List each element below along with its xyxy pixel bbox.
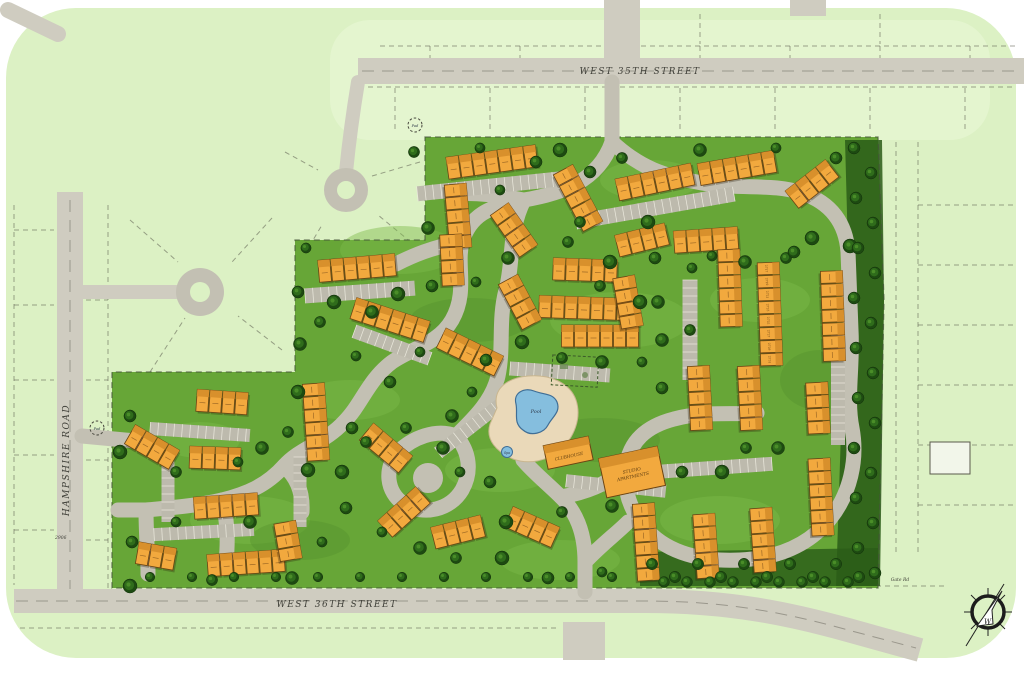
tree	[317, 537, 327, 547]
tree	[869, 417, 881, 429]
tree	[751, 577, 762, 588]
tree	[365, 305, 378, 318]
tree	[830, 152, 842, 164]
tree	[291, 385, 305, 399]
tree	[562, 236, 573, 247]
tree	[715, 571, 726, 582]
building-unit	[819, 284, 843, 299]
tree	[553, 143, 567, 157]
tree	[400, 422, 411, 433]
tree	[705, 577, 716, 588]
building-unit	[738, 417, 763, 432]
tree	[113, 445, 127, 459]
tree	[738, 558, 749, 569]
tree	[426, 280, 438, 292]
tree	[415, 347, 425, 357]
unit-number: 2727	[767, 330, 771, 338]
tree	[707, 251, 717, 261]
tree	[481, 572, 491, 582]
tree	[243, 515, 256, 528]
tree	[865, 317, 877, 329]
tree	[850, 192, 862, 204]
tree	[649, 252, 661, 264]
tree	[651, 295, 664, 308]
building-unit	[601, 325, 615, 349]
tree	[687, 263, 697, 273]
tree	[659, 577, 670, 588]
tree	[351, 351, 361, 361]
tree	[301, 243, 311, 253]
tree	[761, 571, 772, 582]
tree	[484, 476, 496, 488]
building-unit	[588, 325, 602, 349]
tree	[455, 467, 465, 477]
tree	[728, 577, 739, 588]
tree	[384, 376, 396, 388]
building-unit	[688, 417, 713, 432]
unit-number: 2717	[764, 265, 768, 273]
building-unit	[189, 446, 204, 470]
street-stub-bottom	[563, 622, 605, 660]
building-unit	[382, 254, 398, 279]
tree	[335, 465, 349, 479]
tree	[852, 392, 864, 404]
tree	[848, 142, 860, 154]
building-unit	[818, 271, 842, 286]
tree	[805, 231, 819, 245]
tree	[797, 577, 808, 588]
tree	[682, 577, 693, 588]
tree	[676, 466, 688, 478]
building-unit: 2727	[757, 327, 781, 342]
tree	[852, 542, 864, 554]
unit-number: 2729	[767, 343, 771, 351]
tree	[807, 571, 818, 582]
tree	[397, 572, 407, 582]
tree	[355, 572, 365, 582]
tree	[646, 558, 657, 569]
tree	[616, 152, 627, 163]
site-plan-page: Pool Spa CLUBHOUSE STUDIO APARTMENTS 271…	[0, 0, 1024, 674]
tree	[313, 572, 323, 582]
building-unit	[539, 295, 554, 319]
tree	[450, 552, 461, 563]
building-unit: 2723	[757, 301, 781, 316]
tree	[346, 422, 358, 434]
building-unit	[717, 275, 741, 290]
building-unit: 2717	[755, 262, 779, 277]
tot-lot-equipment	[560, 364, 568, 369]
gate-road-label: Gate Rd	[891, 577, 910, 583]
tree	[715, 465, 729, 479]
street-stub-topright	[790, 0, 826, 16]
tree	[499, 515, 513, 529]
tree	[865, 167, 877, 179]
building-unit	[819, 297, 843, 312]
tree	[467, 387, 477, 397]
building-unit	[579, 259, 594, 283]
tree	[843, 577, 854, 588]
parcel-number-label: 2906	[54, 535, 67, 541]
tot-lot-equipment-2	[582, 372, 588, 378]
tree	[495, 551, 509, 565]
tree	[865, 467, 877, 479]
tree	[771, 143, 781, 153]
building-unit	[575, 325, 589, 349]
tree	[867, 517, 879, 529]
tree	[495, 185, 505, 195]
tree	[830, 558, 841, 569]
building-unit	[821, 349, 845, 364]
tree	[867, 367, 879, 379]
tree	[641, 215, 655, 229]
unit-number: 2721	[765, 291, 769, 299]
building-unit	[717, 301, 741, 316]
tree	[126, 536, 138, 548]
tree	[439, 572, 449, 582]
tree	[740, 442, 751, 453]
tree	[850, 342, 862, 354]
building-unit: 2729	[758, 340, 782, 355]
spa-label: Spa	[504, 451, 510, 455]
tree	[869, 567, 881, 579]
street-label-west-36th: WEST 36TH STREET	[276, 600, 397, 610]
tree	[145, 572, 155, 582]
tree	[637, 357, 647, 367]
tree	[556, 352, 567, 363]
tree	[565, 572, 575, 582]
tree	[820, 577, 831, 588]
tree	[656, 382, 668, 394]
tree	[377, 527, 387, 537]
tree	[421, 221, 434, 234]
tree	[445, 409, 458, 422]
street-stub-top	[604, 0, 640, 60]
tree	[480, 354, 492, 366]
tree	[607, 572, 617, 582]
tree	[206, 574, 217, 585]
building-unit	[635, 568, 660, 584]
tree	[788, 246, 800, 258]
tree	[475, 143, 485, 153]
tree	[360, 436, 371, 447]
building-unit	[821, 336, 845, 351]
tree	[501, 251, 514, 264]
tree	[515, 335, 529, 349]
building-unit: 2719	[756, 275, 780, 290]
tree	[271, 572, 281, 582]
tree	[301, 463, 315, 477]
tree	[669, 571, 680, 582]
tree	[574, 216, 585, 227]
tree	[867, 217, 879, 229]
tree	[655, 333, 668, 346]
tree	[391, 287, 405, 301]
building-unit	[718, 314, 742, 329]
building-unit	[552, 296, 567, 320]
tree	[784, 558, 795, 569]
tree	[530, 156, 542, 168]
tree	[124, 410, 136, 422]
tree	[848, 292, 860, 304]
unit-number: 2731	[767, 356, 771, 364]
building-unit	[202, 447, 217, 471]
building-unit: 2725	[757, 314, 781, 329]
tree	[292, 286, 304, 298]
tree	[327, 295, 341, 309]
tree	[584, 166, 596, 178]
tree	[556, 506, 567, 517]
unit-number: 2723	[766, 304, 770, 312]
building-unit	[305, 448, 330, 464]
tree	[255, 441, 268, 454]
pool-label: Pool	[530, 409, 542, 415]
building-unit	[591, 297, 606, 321]
building-unit	[820, 323, 844, 338]
tree	[692, 558, 703, 569]
tree	[123, 579, 137, 593]
building-unit	[717, 288, 741, 303]
unit-number: 2719	[765, 278, 769, 286]
tree	[869, 267, 881, 279]
building-unit	[215, 447, 230, 471]
building-unit: 2721	[756, 288, 780, 303]
building-unit	[440, 273, 465, 288]
building-unit	[578, 297, 593, 321]
tree	[597, 567, 607, 577]
tree	[603, 255, 617, 269]
pad-label-north: Pad	[411, 124, 419, 128]
tree	[771, 441, 784, 454]
tree	[684, 324, 695, 335]
tree	[285, 571, 298, 584]
building-unit	[566, 258, 581, 282]
tree	[633, 295, 647, 309]
tree	[436, 441, 449, 454]
building-unit	[245, 493, 261, 518]
tree	[187, 572, 197, 582]
building-unit	[809, 523, 834, 538]
building-unit	[553, 258, 568, 282]
tree	[233, 457, 243, 467]
pad-label-west: Pad	[93, 427, 101, 431]
building-unit	[565, 296, 580, 320]
tree	[542, 572, 554, 584]
compass-letter: W	[984, 618, 992, 626]
tree	[293, 337, 306, 350]
building-unit	[562, 325, 576, 349]
tree	[693, 143, 706, 156]
tree	[471, 277, 481, 287]
street-label-hampshire: HAMPSHIRE ROAD	[62, 404, 72, 517]
unit-number: 2725	[766, 317, 770, 325]
building-unit	[716, 262, 740, 277]
tree	[738, 255, 751, 268]
tree	[523, 572, 533, 582]
tree	[282, 426, 293, 437]
building-unit	[725, 227, 741, 252]
tree	[340, 502, 352, 514]
building-unit	[235, 392, 251, 417]
tree	[853, 571, 864, 582]
site-plan-drawing: Pool Spa CLUBHOUSE STUDIO APARTMENTS 271…	[0, 0, 1024, 674]
tree	[170, 466, 181, 477]
tree	[852, 242, 864, 254]
tree	[413, 541, 426, 554]
building-unit	[820, 310, 844, 325]
tree	[848, 442, 860, 454]
building-unit	[716, 249, 740, 264]
street-label-west-35th: WEST 35TH STREET	[579, 67, 700, 77]
tree	[595, 355, 608, 368]
neighbor-building-footprint	[930, 442, 970, 474]
tree	[850, 492, 862, 504]
tree	[229, 572, 239, 582]
tree	[408, 146, 419, 157]
tree	[314, 316, 325, 327]
tree	[774, 577, 785, 588]
building-unit: 2731	[758, 353, 782, 368]
building-unit	[806, 421, 831, 436]
tree	[171, 517, 181, 527]
tree	[594, 280, 605, 291]
tree	[605, 499, 618, 512]
